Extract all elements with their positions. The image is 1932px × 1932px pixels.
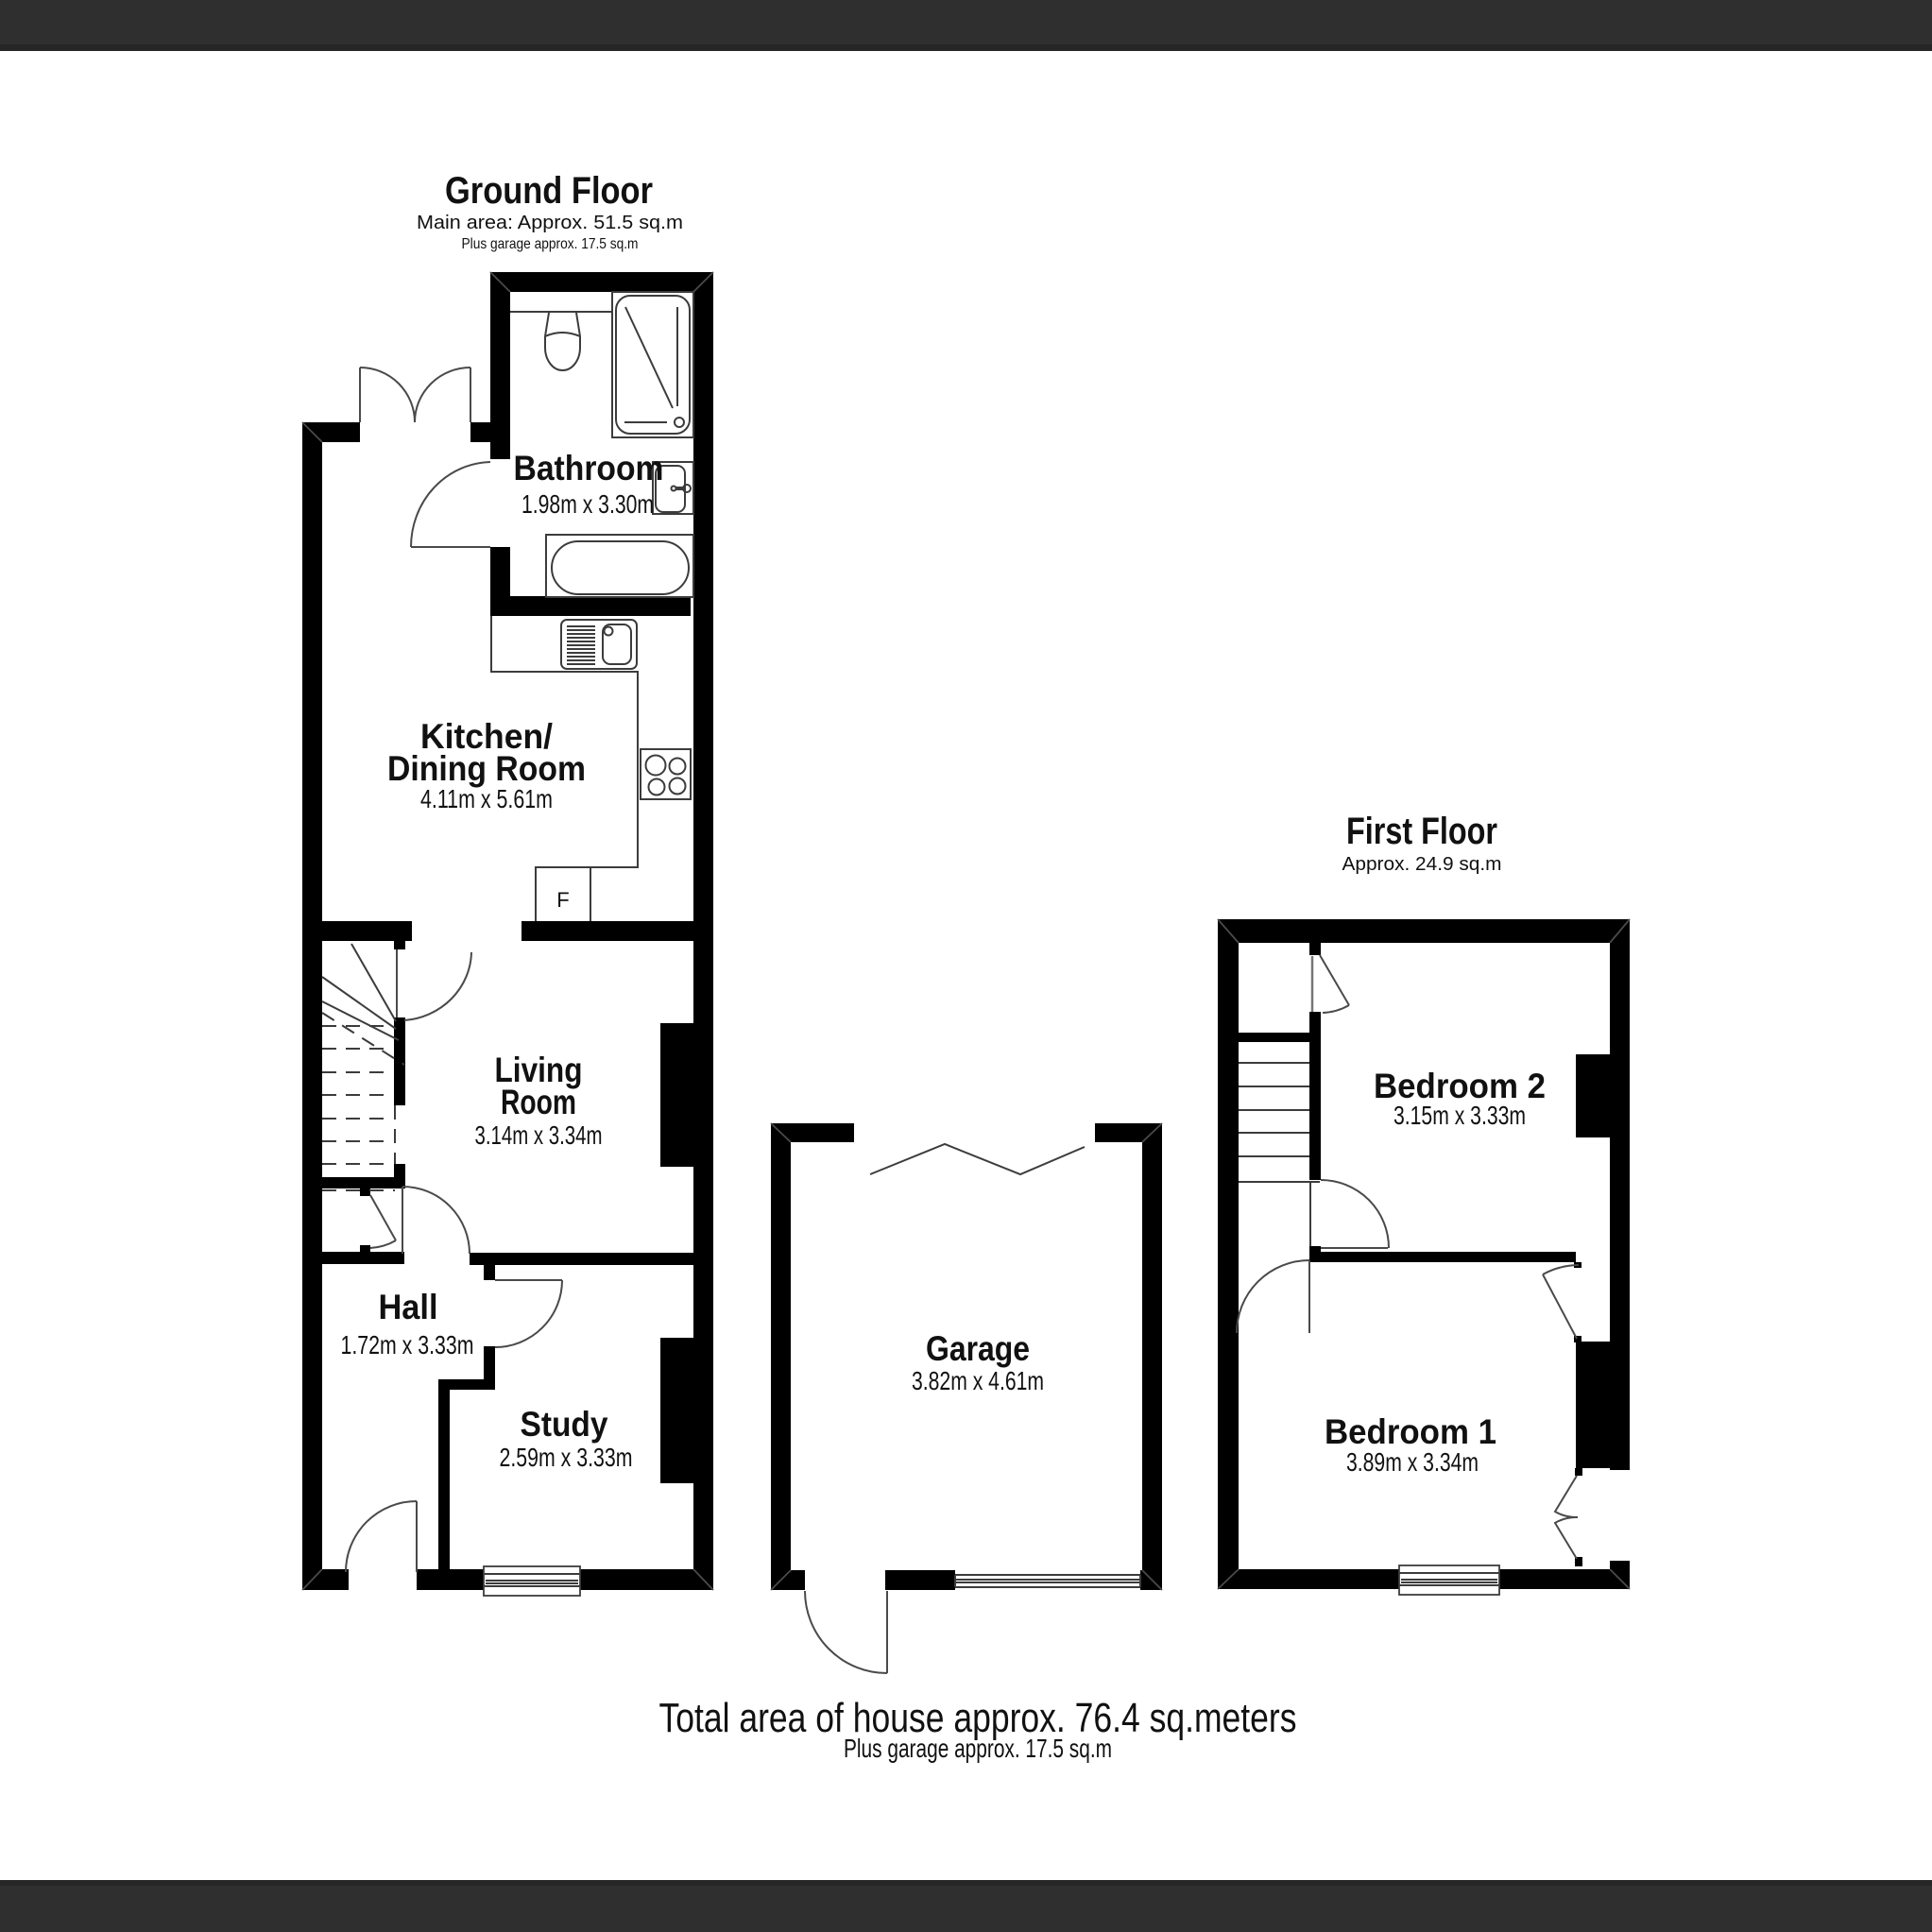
- svg-text:3.14m x 3.34m: 3.14m x 3.34m: [475, 1120, 603, 1150]
- svg-text:Plus garage approx. 17.5 sq.m: Plus garage approx. 17.5 sq.m: [462, 236, 639, 252]
- svg-text:1.98m x 3.30m: 1.98m x 3.30m: [521, 489, 654, 519]
- svg-text:Plus garage approx. 17.5 sq.m: Plus garage approx. 17.5 sq.m: [844, 1734, 1112, 1763]
- svg-text:First Floor: First Floor: [1346, 811, 1497, 852]
- svg-text:F: F: [556, 888, 569, 912]
- svg-text:Dining Room: Dining Room: [387, 749, 586, 788]
- svg-text:Hall: Hall: [379, 1288, 438, 1326]
- svg-text:3.89m x 3.34m: 3.89m x 3.34m: [1346, 1447, 1479, 1477]
- svg-text:Room: Room: [501, 1083, 576, 1121]
- svg-text:Bedroom 1: Bedroom 1: [1325, 1412, 1496, 1451]
- svg-text:3.82m x 4.61m: 3.82m x 4.61m: [912, 1366, 1044, 1395]
- svg-text:Study: Study: [521, 1405, 608, 1444]
- svg-text:4.11m x 5.61m: 4.11m x 5.61m: [420, 784, 553, 813]
- svg-text:1.72m x 3.33m: 1.72m x 3.33m: [341, 1330, 474, 1359]
- svg-text:Main area: Approx. 51.5 sq.m: Main area: Approx. 51.5 sq.m: [417, 213, 683, 233]
- svg-text:3.15m x 3.33m: 3.15m x 3.33m: [1393, 1101, 1526, 1130]
- svg-text:Ground Floor: Ground Floor: [445, 170, 653, 212]
- svg-text:Approx. 24.9 sq.m: Approx. 24.9 sq.m: [1342, 854, 1502, 875]
- svg-text:Garage: Garage: [926, 1329, 1030, 1368]
- svg-text:Bedroom 2: Bedroom 2: [1374, 1067, 1546, 1105]
- svg-text:2.59m x 3.33m: 2.59m x 3.33m: [500, 1443, 633, 1472]
- svg-text:Bathroom: Bathroom: [514, 449, 664, 487]
